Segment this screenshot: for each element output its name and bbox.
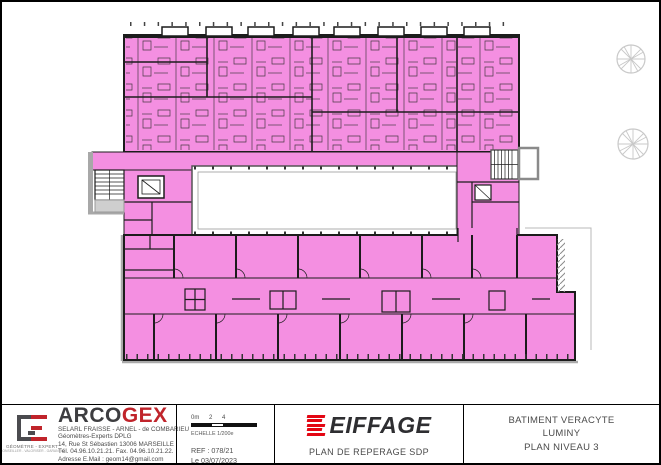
tree-icon: [617, 45, 645, 73]
company-cell: EIFFAGE PLAN DE REPERAGE SDP: [274, 405, 463, 463]
surveyor-brand: ARCOGEX: [58, 405, 174, 426]
elevator-east-icon: [475, 185, 491, 200]
surveyor-line-4: Tél. 04.96.10.21.21. Fax. 04.96.10.21.22…: [58, 448, 174, 456]
plant-room-east: [519, 148, 538, 179]
project-cell: BATIMENT VERACYTE LUMINY PLAN NIVEAU 3: [463, 405, 659, 463]
company-brand: EIFFAGE: [330, 412, 432, 439]
project-site: LUMINY: [543, 427, 581, 441]
stair-west-icon: [95, 170, 124, 212]
surveyor-line-1: SELARL FRAISSE - ARNEL - de COMBARIEU: [58, 426, 174, 434]
plan-sheet: GÉOMÈTRE - EXPERT CONSEILLER - VALORISER…: [0, 0, 661, 465]
scale-tick-0: 0m: [191, 415, 199, 421]
plan-type-title: PLAN DE REPERAGE SDP: [309, 447, 429, 457]
elevator-west-icon: [138, 176, 164, 198]
project-building: BATIMENT VERACYTE: [508, 414, 614, 428]
wall-hatch-east: [557, 239, 565, 292]
surveyor-line-5: Adresse E.Mail : geom14@gmail.com: [58, 456, 174, 464]
scale-tick-2: 2: [209, 415, 212, 421]
stair-east-icon: [491, 150, 518, 179]
surveyor-line-2: Géomètres-Experts DPLG: [58, 433, 174, 441]
mid-level-strip: [88, 148, 538, 239]
geometre-expert-logo: GÉOMÈTRE - EXPERT CONSEILLER - VALORISER…: [10, 415, 54, 453]
office-wing-south: [122, 228, 578, 362]
plan-date: Le 03/07/2023: [191, 456, 262, 465]
reference-number: REF : 078/21: [191, 446, 262, 456]
scale-label: ECHELLE 1/200e: [191, 431, 262, 437]
surveyor-cell: GÉOMÈTRE - EXPERT CONSEILLER - VALORISER…: [2, 405, 176, 463]
surveyor-line-3: 14, Rue St Sébastien 13006 MARSEILLE: [58, 441, 174, 449]
ge-monogram-icon: [17, 415, 47, 441]
tree-icon: [618, 129, 648, 159]
logo-subcaption: CONSEILLER - VALORISER - GARANTIR: [0, 449, 64, 453]
lab-benches-pattern: [126, 37, 517, 150]
scale-bar: 0m 2 4: [191, 415, 257, 429]
scale-tick-4: 4: [222, 415, 225, 421]
title-block: GÉOMÈTRE - EXPERT CONSEILLER - VALORISER…: [2, 404, 659, 463]
floor-plan-drawing: [2, 2, 661, 404]
atrium-void: [192, 166, 462, 235]
scale-cell: 0m 2 4 ECHELLE 1/200e REF : 078/21 Le 03…: [176, 405, 274, 463]
project-level: PLAN NIVEAU 3: [524, 441, 599, 455]
eiffage-logo-icon: [307, 415, 327, 436]
facade-west: [88, 152, 93, 214]
lab-wing-north: [124, 24, 519, 152]
